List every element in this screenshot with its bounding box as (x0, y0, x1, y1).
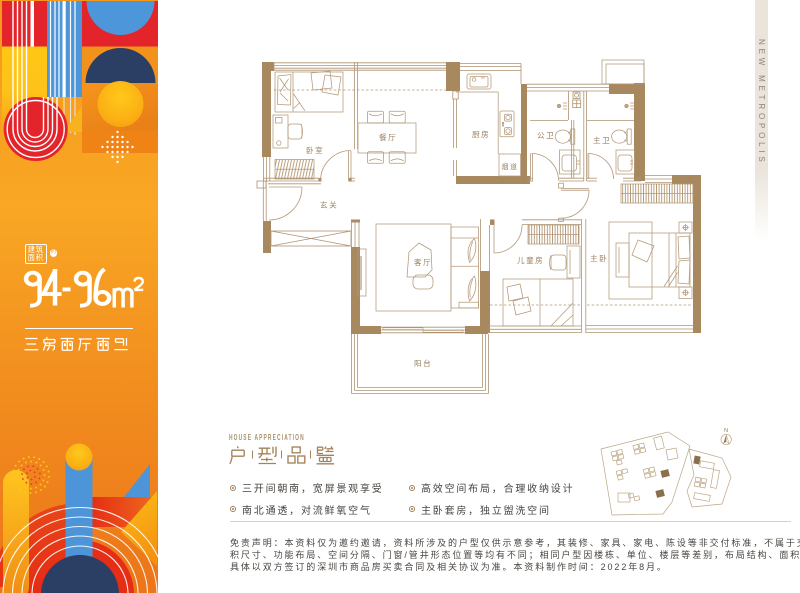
svg-text:公卫: 公卫 (537, 131, 555, 140)
svg-text:厨房: 厨房 (472, 129, 490, 139)
svg-text:卧室: 卧室 (306, 145, 324, 155)
svg-text:主卧: 主卧 (590, 253, 608, 263)
svg-text:阳台: 阳台 (414, 358, 432, 368)
svg-text:N: N (724, 428, 728, 434)
svg-text:餐厅: 餐厅 (379, 133, 397, 142)
svg-text:客厅: 客厅 (414, 257, 432, 267)
svg-text:儿童房: 儿童房 (517, 255, 544, 265)
svg-text:烟道: 烟道 (502, 162, 519, 171)
svg-text:玄关: 玄关 (320, 200, 338, 210)
svg-text:主卫: 主卫 (593, 135, 611, 145)
